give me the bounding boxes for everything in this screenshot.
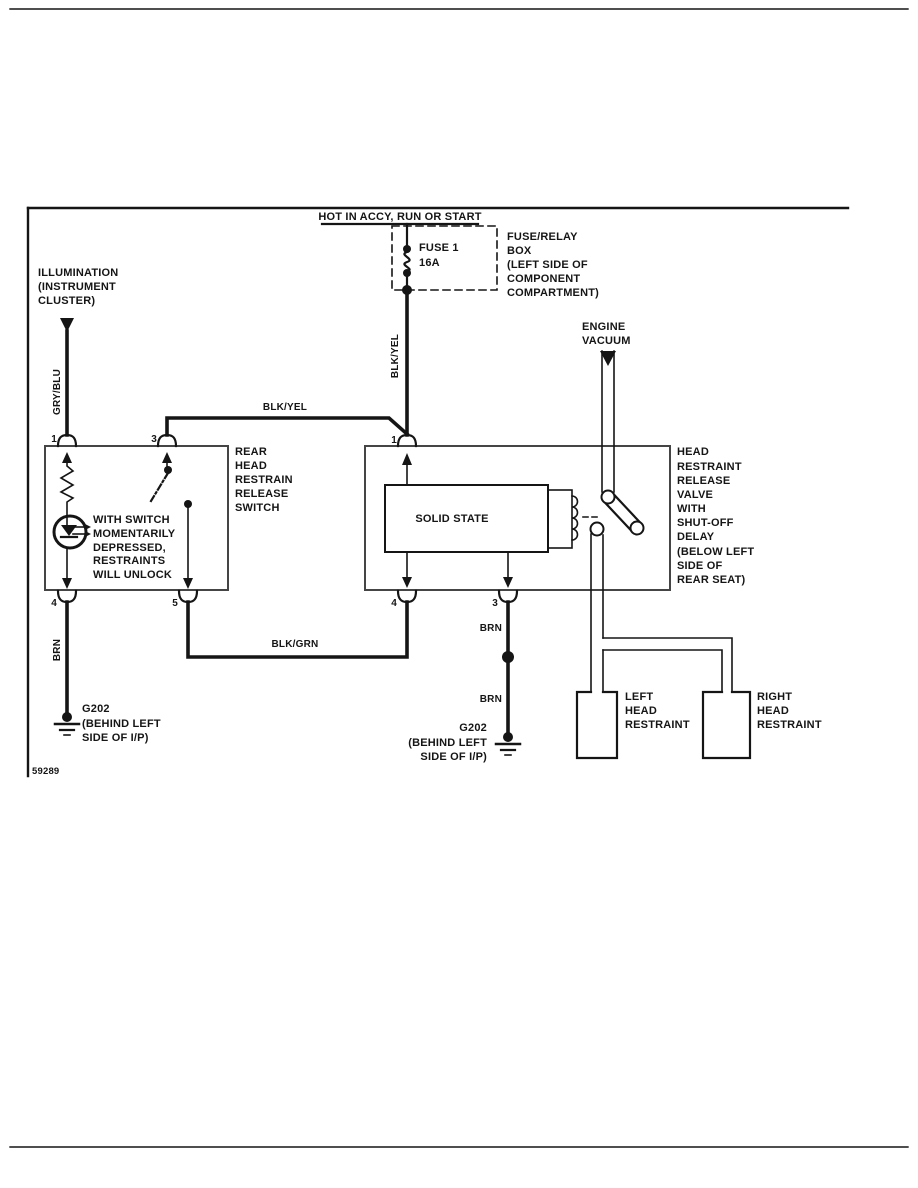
valve-pin-4: 4	[391, 598, 397, 609]
valve-box-label-line: DELAY	[677, 531, 715, 543]
switch-pin-4: 4	[51, 598, 57, 609]
engine-vacuum-supply: ENGINE VACUUM	[582, 321, 631, 492]
valve-box-label-line: (BELOW LEFT	[677, 546, 754, 558]
pin-arrow-icon	[62, 578, 72, 589]
valve-box-label: HEAD RESTRAINT RELEASE VALVE WITH SHUT-O…	[677, 446, 754, 586]
switch-note: WITH SWITCH MOMENTARILY DEPRESSED, RESTR…	[93, 514, 176, 581]
valve-cylinder-side	[613, 493, 642, 524]
ground-icon	[55, 712, 79, 735]
switch-box-label: REAR HEAD RESTRAIN RELEASE SWITCH	[235, 446, 293, 514]
fuse-box-label-line: COMPARTMENT)	[507, 287, 599, 299]
fuse-element	[404, 252, 409, 271]
valve-box-label-line: HEAD	[677, 446, 709, 458]
head-restraints: LEFT HEAD RESTRAINT RIGHT HEAD RESTRAINT	[577, 691, 822, 758]
coil-arcs	[572, 496, 578, 540]
switch-box-label-line: RELEASE	[235, 488, 288, 500]
ground-middle-label-line: (BEHIND LEFT	[408, 737, 487, 749]
valve-box-label-line: RESTRAINT	[677, 461, 742, 473]
illumination-label-line: ILLUMINATION	[38, 267, 118, 279]
switch-box-label-line: RESTRAIN	[235, 474, 293, 486]
right-head-restraint-label-line: HEAD	[757, 705, 789, 717]
valve-pin-3: 3	[492, 598, 498, 609]
right-head-restraint-outline	[703, 692, 750, 758]
led-ray-arrowhead	[85, 531, 91, 537]
wiring-diagram-svg: HOT IN ACCY, RUN OR START FUSE 1 16A FUS…	[0, 0, 918, 1188]
pin-arrow-icon	[183, 578, 193, 589]
fuse-box-label-line: BOX	[507, 245, 532, 257]
resistor-zigzag	[61, 463, 73, 516]
solid-state-label: SOLID STATE	[415, 513, 488, 525]
middle-ground-run: BRN BRN G202 (BEHIND LEFT SIDE OF I/P)	[408, 602, 520, 763]
fuse-box-label-line: COMPONENT	[507, 273, 580, 285]
fuse-box-label: FUSE/RELAY BOX (LEFT SIDE OF COMPONENT C…	[507, 231, 599, 299]
ground-middle-label-line: G202	[459, 722, 487, 734]
tube-wall	[603, 650, 722, 692]
valve-box-label-line: VALVE	[677, 489, 713, 501]
switch-pin-1: 1	[51, 434, 57, 445]
valve-box-outline	[365, 446, 670, 590]
switch-blade	[151, 473, 168, 501]
blk-yel-horizontal-label: BLK/YEL	[263, 402, 307, 413]
switch-note-line: MOMENTARILY	[93, 528, 176, 540]
illumination-feed: ILLUMINATION (INSTRUMENT CLUSTER) GRY/BL…	[38, 267, 118, 435]
switch-box: 1 3	[45, 434, 293, 609]
ground-dot	[62, 712, 72, 722]
fuse-name: FUSE 1	[419, 242, 459, 254]
right-head-restraint-label-line: RESTRAINT	[757, 719, 822, 731]
blk-yel-wiring: BLK/YEL BLK/YEL	[167, 290, 407, 435]
engine-vacuum-label-line: ENGINE	[582, 321, 625, 333]
fuse-box-label-line: FUSE/RELAY	[507, 231, 578, 243]
led-ray-arrowhead	[85, 524, 91, 530]
fuse-box-label-line: (LEFT SIDE OF	[507, 259, 588, 271]
pin-arrow-icon	[162, 452, 172, 463]
valve-box-label-line: WITH	[677, 503, 706, 515]
fuse-rating: 16A	[419, 257, 440, 269]
left-head-restraint-label: LEFT HEAD RESTRAINT	[625, 691, 690, 731]
switch-pin-3: 3	[151, 434, 157, 445]
left-ground-run: BRN G202 (BEHIND LEFT SIDE OF I/P)	[52, 602, 161, 744]
fuse-icon	[402, 224, 412, 295]
valve-cylinder-end	[631, 522, 644, 535]
switch-note-line: WITH SWITCH	[93, 514, 170, 526]
valve-outlet-port	[591, 523, 604, 536]
pin-arrow-icon	[402, 577, 412, 588]
illumination-label-line: CLUSTER)	[38, 295, 95, 307]
ground-dot	[503, 732, 513, 742]
left-head-restraint-label-line: HEAD	[625, 705, 657, 717]
coil-bracket	[548, 490, 572, 548]
switch-note-line: RESTRAINTS	[93, 555, 165, 567]
blk-yel-vertical-label: BLK/YEL	[390, 334, 401, 378]
valve-pin-1: 1	[391, 435, 397, 446]
ground-middle-label-line: SIDE OF I/P)	[420, 751, 487, 763]
ground-left-label-line: SIDE OF I/P)	[82, 732, 149, 744]
valve-cylinder-side	[604, 501, 633, 532]
blk-grn-wiring: BLK/GRN	[188, 602, 407, 657]
right-head-restraint-label-line: RIGHT	[757, 691, 792, 703]
left-head-restraint-label-line: LEFT	[625, 691, 653, 703]
valve-box-label-line: SIDE OF	[677, 560, 722, 572]
switch-pin-5: 5	[172, 598, 178, 609]
brn-mid-upper-label: BRN	[480, 623, 502, 634]
ground-middle-label: G202 (BEHIND LEFT SIDE OF I/P)	[408, 722, 487, 763]
power-feed: HOT IN ACCY, RUN OR START FUSE 1 16A FUS…	[318, 211, 599, 299]
blk-yel-horizontal-wire	[167, 418, 407, 435]
ground-left-label-line: (BEHIND LEFT	[82, 718, 161, 730]
right-head-restraint-label: RIGHT HEAD RESTRAINT	[757, 691, 822, 731]
valve-inlet-port	[602, 491, 615, 504]
ground-icon	[496, 732, 520, 755]
valve-box: 1 SOLID STATE 4 3 HE	[365, 435, 754, 609]
blk-grn-label: BLK/GRN	[272, 639, 319, 650]
switch-note-line: DEPRESSED,	[93, 542, 166, 554]
switch-note-line: WILL UNLOCK	[93, 569, 172, 581]
left-head-restraint-label-line: RESTRAINT	[625, 719, 690, 731]
switch-box-label-line: REAR	[235, 446, 267, 458]
wiring-diagram-page: HOT IN ACCY, RUN OR START FUSE 1 16A FUS…	[0, 0, 918, 1188]
tube-wall	[603, 638, 732, 692]
ground-left-label-line: G202	[82, 703, 110, 715]
resistor-icon	[61, 463, 73, 516]
splice-dot	[502, 651, 514, 663]
valve-box-label-line: SHUT-OFF	[677, 517, 734, 529]
diagram-border	[28, 208, 848, 776]
illumination-label-line: (INSTRUMENT	[38, 281, 116, 293]
ground-left-label: G202 (BEHIND LEFT SIDE OF I/P)	[82, 703, 161, 744]
valve-box-label-line: REAR SEAT)	[677, 574, 746, 586]
vacuum-valve-icon	[591, 491, 644, 536]
power-feed-label: HOT IN ACCY, RUN OR START	[318, 211, 481, 223]
brn-left-label: BRN	[52, 639, 63, 661]
pin-arrow-icon	[503, 577, 513, 588]
pin-arrow-icon	[62, 452, 72, 463]
led-icon	[54, 516, 91, 548]
switch-box-label-line: SWITCH	[235, 502, 280, 514]
valve-box-label-line: RELEASE	[677, 475, 730, 487]
solenoid-coil-icon	[548, 490, 601, 548]
brn-mid-lower-label: BRN	[480, 694, 502, 705]
gry-blu-wire-label: GRY/BLU	[52, 369, 63, 415]
switch-box-label-line: HEAD	[235, 460, 267, 472]
figure-number: 59289	[32, 766, 59, 777]
engine-vacuum-label-line: VACUUM	[582, 335, 631, 347]
left-head-restraint-outline	[577, 692, 617, 758]
